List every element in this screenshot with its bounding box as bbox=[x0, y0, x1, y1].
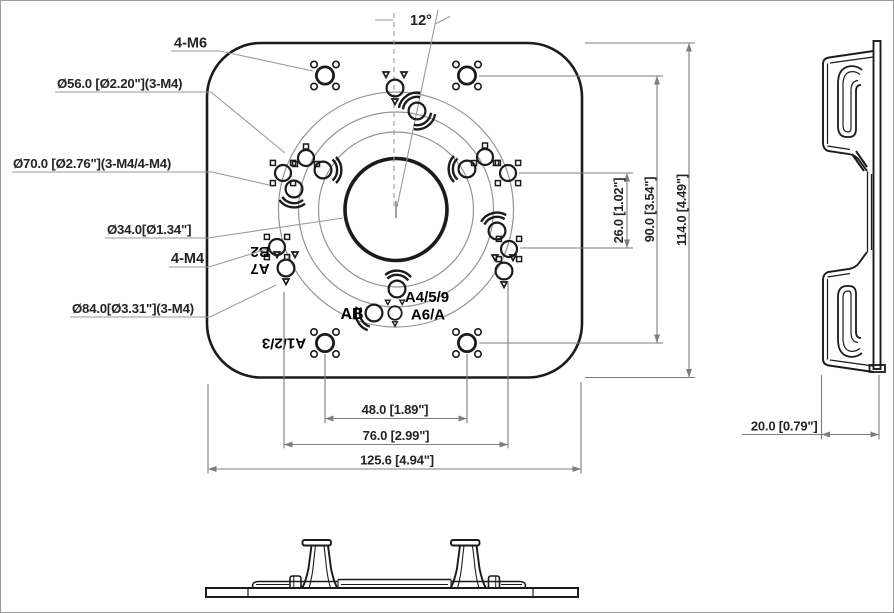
callout-d70: Ø70.0 [Ø2.76"](3-M4/4-M4) bbox=[13, 156, 171, 171]
side-view: 20.0 [0.79"] bbox=[742, 41, 885, 440]
dimension-20: 20.0 [0.79"] bbox=[742, 375, 879, 440]
callouts: 4-M6 Ø56.0 [Ø2.20"](3-M4) Ø70.0 [Ø2.76"]… bbox=[12, 36, 343, 318]
engraving-a6a: A6/A bbox=[411, 307, 445, 324]
dimension-114: 114.0 [4.49"] bbox=[585, 43, 695, 378]
engraving-a459: A4/5/9 bbox=[405, 289, 449, 306]
m4-hole bbox=[387, 80, 404, 97]
m4-hole bbox=[496, 236, 521, 261]
m6-hole bbox=[311, 329, 339, 357]
m6-hole bbox=[311, 61, 339, 89]
callout-d56: Ø56.0 [Ø2.20"](3-M4) bbox=[57, 76, 182, 91]
bracket-drawing: 12° bbox=[1, 1, 894, 613]
engraving-a7: A7 bbox=[250, 260, 269, 277]
dimension-26: 26.0 [1.02"] bbox=[519, 173, 633, 248]
callout-4m4: 4-M4 bbox=[171, 251, 204, 267]
side-mid-section bbox=[852, 151, 872, 252]
arc-marks-icon bbox=[385, 270, 412, 281]
m4-hole bbox=[459, 161, 476, 178]
side-plate-edge bbox=[874, 41, 881, 369]
m6-hole bbox=[453, 329, 481, 357]
arc-marks-icon bbox=[279, 197, 306, 209]
m6-hole bbox=[453, 61, 481, 89]
side-boss-upper bbox=[823, 51, 874, 171]
angle-label: 12° bbox=[410, 13, 432, 29]
dim-20-label: 20.0 [0.79"] bbox=[751, 419, 818, 434]
m4-hole bbox=[389, 281, 406, 298]
arc-marks-icon bbox=[333, 157, 342, 183]
engraving-ab: AB bbox=[340, 306, 363, 323]
dim-48-label: 48.0 [1.89"] bbox=[362, 402, 429, 417]
m4-hole bbox=[385, 300, 404, 326]
callout-4m6: 4-M6 bbox=[174, 36, 207, 52]
dim-26-label: 26.0 [1.02"] bbox=[611, 178, 626, 244]
arc-marks-icon bbox=[449, 156, 458, 182]
side-boss-lower bbox=[823, 252, 874, 372]
dim-125-label: 125.6 [4.94"] bbox=[360, 453, 434, 468]
m4-hole-clusters bbox=[264, 72, 521, 333]
m4-hole bbox=[278, 260, 295, 277]
angle-dimension: 12° bbox=[375, 10, 450, 207]
plate-engravings: B2 A7 A1/2/3 AB A4/5/9 A6/A bbox=[250, 243, 449, 352]
dim-114-label: 114.0 [4.49"] bbox=[674, 174, 689, 246]
dimension-48: 48.0 [1.89"] bbox=[325, 354, 467, 423]
dim-90-label: 90.0 [3.54"] bbox=[642, 177, 657, 243]
dim-76-label: 76.0 [2.99"] bbox=[363, 428, 430, 443]
bottom-view bbox=[206, 540, 578, 597]
front-view: 12° bbox=[12, 10, 695, 474]
m4-hole bbox=[496, 263, 513, 280]
base-plate bbox=[206, 588, 578, 597]
m4-hole bbox=[286, 181, 303, 198]
callout-d84: Ø84.0[Ø3.31"](3-M4) bbox=[72, 301, 194, 316]
dimension-90: 90.0 [3.54"] bbox=[479, 76, 663, 343]
callout-d34: Ø34.0[Ø1.34"] bbox=[107, 222, 191, 237]
m4-hole bbox=[366, 305, 383, 322]
technical-drawing-page: 12° bbox=[0, 0, 894, 613]
